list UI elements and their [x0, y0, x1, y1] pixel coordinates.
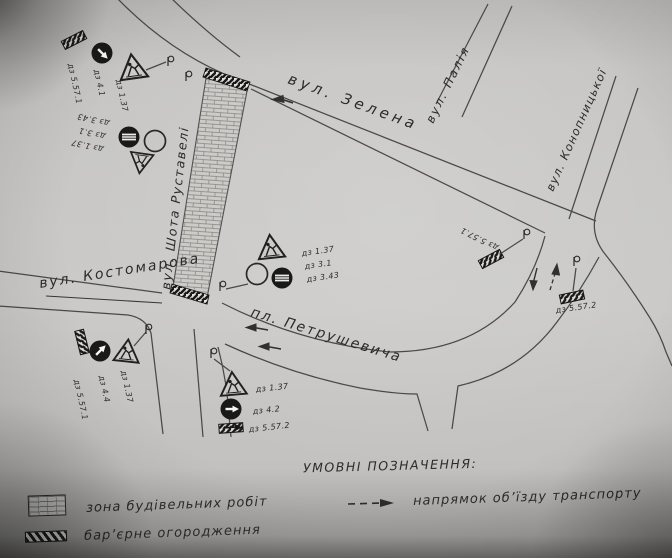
sign-code: дз 3.1 — [78, 126, 108, 141]
roadworks-sign-icon — [128, 152, 153, 175]
sign-code: дз 3.1 — [303, 258, 332, 271]
sign-code: дз 4.2 — [251, 404, 280, 416]
scanned-traffic-scheme: вул. Зелена вул. Палія вул. Конопницької… — [0, 0, 672, 558]
traffic-arrow-link-down — [534, 268, 538, 282]
roadworks-sign-icon — [117, 52, 148, 80]
round-sign-icon — [247, 264, 268, 285]
legend-zone-swatch — [28, 494, 67, 516]
street-label-petrushevycha: пл. Петрушевича — [249, 305, 404, 366]
sign-code: дз 5.57.1 — [459, 225, 501, 252]
traffic-arrowhead-link-down — [530, 281, 537, 291]
roadworks-sign-icon — [113, 338, 140, 363]
round-sign-icon — [145, 131, 166, 152]
legend-arrowhead — [380, 499, 394, 507]
sign-code: дз 3.43 — [76, 112, 111, 128]
no-entry-sign-icon — [272, 268, 293, 289]
sign-group-bottom-center: дз 1.37 дз 4.2 дз 5.57.2 — [211, 348, 290, 434]
sign-code: дз 5.57.2 — [247, 421, 290, 434]
road-edge-palia-east — [462, 6, 512, 117]
road-network — [0, 0, 672, 437]
sign-post-icon — [186, 71, 192, 81]
leader-line — [134, 332, 146, 346]
barrier-sign-icon — [75, 329, 90, 354]
no-entry-sign-icon — [119, 127, 140, 148]
sign-code: дз 1.37 — [254, 382, 289, 395]
leader-line — [214, 359, 230, 371]
road-edge-petrushevycha-east — [452, 257, 599, 429]
sign-group-left-mid: дз 3.43 дз 3.1 дз 1.37 — [70, 112, 166, 175]
sign-post-icon — [211, 348, 217, 358]
barrier-sign-icon — [478, 249, 503, 268]
traffic-arrowhead-petr-2 — [259, 343, 269, 350]
sign-group-right-upper: дз 5.57.1 — [459, 225, 530, 268]
sign-code: дз 4.1 — [92, 68, 107, 98]
traffic-arrowhead-zelena — [272, 96, 284, 103]
mandatory-direction-sign-icon — [87, 38, 117, 68]
sign-post-icon — [168, 56, 174, 66]
kostomarova-underline — [46, 296, 162, 303]
legend-detour-arrow-icon — [346, 496, 402, 510]
sign-post-icon — [524, 229, 530, 239]
road-edge-konopnytska-east — [594, 88, 672, 366]
leader-line — [500, 239, 523, 254]
traffic-arrowhead-petr-1 — [246, 324, 256, 331]
road-edge-zelena-south-west — [170, 0, 240, 57]
leader-line — [146, 62, 166, 70]
sign-group-right-lower: дз 5.57.2 — [554, 256, 597, 315]
mandatory-direction-sign-icon — [85, 336, 115, 366]
sign-code: дз 5.57.1 — [72, 378, 90, 421]
legend-arrow-dash — [348, 503, 382, 504]
sign-group-top-left: дз 5.57.1 дз 4.1 дз 1.37 — [61, 31, 192, 114]
leader-line — [573, 268, 576, 291]
traffic-arrows — [246, 96, 560, 351]
sign-code: дз 1.37 — [114, 78, 130, 114]
sign-group-center: дз 1.37 дз 3.1 дз 3.43 — [220, 233, 340, 291]
sign-code: дз 1.37 — [300, 244, 335, 258]
road-edge-south-street-east — [194, 329, 203, 437]
street-label-zelena: вул. Зелена — [286, 70, 421, 134]
mandatory-direction-sign-icon — [221, 399, 242, 420]
street-label-palia: вул. Палія — [423, 44, 472, 126]
sign-code: дз 1.37 — [119, 369, 135, 405]
sign-code: дз 5.57.1 — [66, 62, 84, 105]
roadworks-sign-icon — [256, 233, 285, 259]
leader-line — [226, 284, 248, 289]
barrier-sign-icon — [61, 31, 86, 50]
sign-post-icon — [220, 281, 226, 291]
roadworks-sign-icon — [219, 371, 247, 396]
sign-code: дз 3.43 — [305, 270, 340, 284]
sign-post-icon — [574, 256, 580, 266]
detour-arrowhead-dashed — [552, 264, 560, 275]
sign-group-bottom-left: дз 1.37 дз 4.4 дз 5.57.1 — [72, 324, 152, 421]
sign-code: дз 4.4 — [97, 374, 112, 404]
legend-barrier-swatch — [25, 530, 67, 542]
street-label-konopnytska: вул. Конопницької — [543, 66, 610, 193]
